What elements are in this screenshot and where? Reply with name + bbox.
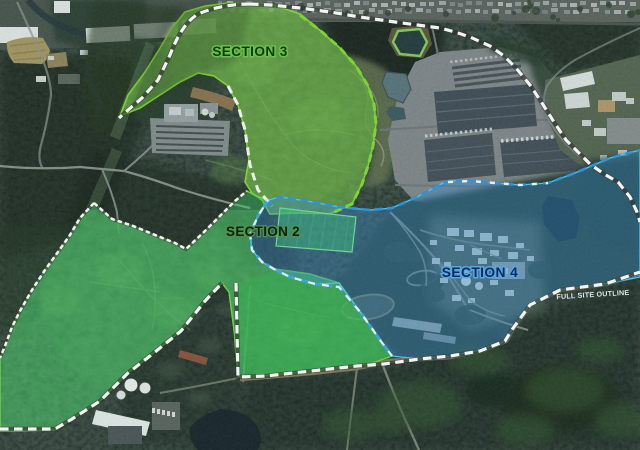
svg-text:SECTION 2: SECTION 2 [226,224,300,239]
svg-text:SECTION 3: SECTION 3 [212,44,287,59]
svg-text:SECTION 4: SECTION 4 [442,265,518,280]
